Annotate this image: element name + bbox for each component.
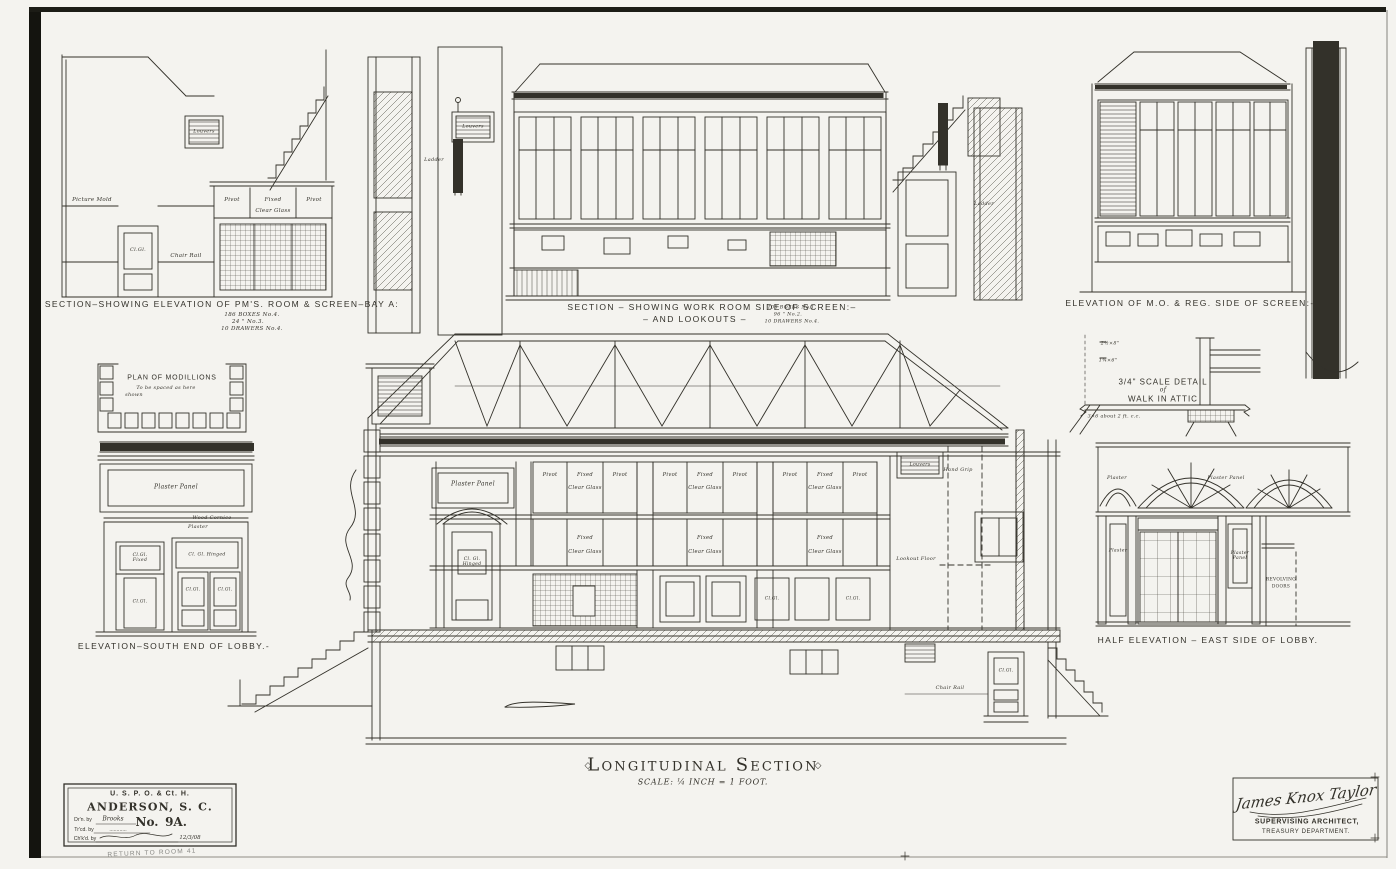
plaster-panel-label: Plaster Panel (451, 481, 495, 488)
clear-glass-label: Clear Glass (808, 485, 841, 491)
sheet-number-label: No. (136, 815, 159, 829)
plaster-label: Plaster (188, 524, 208, 530)
chair-rail-label: Chair Rail (170, 253, 201, 259)
clgl-label: Cl.Gl. (133, 600, 148, 605)
drawn-by-value: Brooks (102, 816, 123, 823)
main-section-drawing (346, 334, 1108, 744)
south-lobby-drawing (96, 442, 256, 636)
title-block-agency: U. S. P. O. & Ct. H. (110, 791, 190, 798)
workroom-note: 96 " No.2. (774, 313, 802, 318)
clear-glass-label: Clear Glass (688, 549, 721, 555)
moreg-title: ELEVATION OF M.O. & REG. SIDE OF SCREEN:… (1065, 298, 1314, 308)
sheet-number-value: 9A. (165, 815, 187, 829)
plaster-panel-label: Plaster Panel (1227, 551, 1253, 561)
fixed-label: Fixed (817, 472, 833, 478)
chair-rail-label: Chair Rail (936, 685, 965, 691)
modillions-note-1: To be spaced as here (136, 385, 195, 391)
clear-glass-label: Clear Glass (688, 485, 721, 491)
clear-glass-label: Clear Glass (568, 485, 601, 491)
modillions-title: PLAN OF MODILLIONS (127, 375, 216, 382)
architect-role: SUPERVISING ARCHITECT, (1255, 819, 1359, 826)
sheet-scale: SCALE: ¼ INCH = 1 FOOT. (638, 778, 769, 787)
clgl-label: Cl.Gl. (999, 669, 1014, 674)
attic-title-2: of (1160, 387, 1166, 394)
fixed-label: Fixed (697, 535, 713, 541)
revolving-doors-label: REVOLVING (1266, 578, 1296, 583)
clgl-label: Cl.Gl. (130, 247, 146, 253)
clgl-label: Cl.Gl. (186, 588, 201, 593)
clgl-label: Cl.Gl. (846, 597, 861, 602)
picture-mold-label: Picture Mold (72, 197, 112, 203)
pivot-label: Pivot (306, 197, 322, 203)
attic-title-3: WALK IN ATTIC (1128, 395, 1198, 404)
attic-dim-2: 1¾×6" (1099, 359, 1117, 364)
attic-dim-1: 2½×8" (1101, 342, 1119, 347)
revolving-doors-label: DOORS (1272, 585, 1290, 590)
pms-note: 10 DRAWERS No.4. (221, 326, 283, 332)
architect-dept: TREASURY DEPARTMENT. (1262, 829, 1350, 835)
wood-cornice-label: Wood Cornice (192, 515, 231, 521)
right-ladder-drawing (1306, 48, 1358, 378)
pivot-label: Pivot (853, 472, 868, 478)
clgl-hinged-label: Cl. Gl. Hinged (188, 553, 225, 558)
moreg-drawing (1080, 52, 1305, 292)
pivot-label: Pivot (733, 472, 748, 478)
plaster-panel-label: Plaster Panel (1207, 475, 1244, 481)
pivot-label: Pivot (783, 472, 798, 478)
clear-glass-label: Clear Glass (568, 549, 601, 555)
pms-note: 186 BOXES No.4. (224, 312, 279, 318)
scan-border (29, 7, 1387, 858)
traced-by-value: ............ (109, 827, 126, 833)
title-block-city: ANDERSON, S. C. (87, 801, 213, 814)
tower-drawing (438, 47, 502, 335)
clear-glass-label: Clear Glass (808, 549, 841, 555)
drawn-by-label: Dr'n. by (74, 817, 92, 823)
fixed-label: Fixed (577, 472, 593, 478)
checked-date-value: 12/3/08 (179, 835, 200, 841)
workroom-subtitle: – AND LOOKOUTS – (643, 314, 747, 324)
plaster-label: Plaster (1109, 549, 1128, 554)
checked-by-label: Ch'k'd. by (74, 836, 96, 842)
fixed-label: Fixed (265, 197, 282, 203)
clgl-label: Cl.Gl. (765, 597, 780, 602)
hand-grip-label: Hand Grip (943, 467, 972, 473)
clgl-hinged-label: Cl. Gl. Hinged (457, 557, 487, 567)
ladder-label: Ladder (974, 201, 994, 207)
pms-title: SECTION–SHOWING ELEVATION OF PM'S. ROOM … (45, 299, 399, 309)
attic-note: 3×6 about 2 ft. c.c. (1088, 415, 1141, 420)
modillions-note-2: shown (125, 392, 143, 398)
pms-room-drawing (62, 50, 334, 297)
signature-block-rules (901, 773, 1379, 860)
louvers-label: Louvers (910, 463, 931, 468)
pivot-label: Pivot (543, 472, 558, 478)
east-lobby-drawing (1096, 443, 1350, 626)
south-lobby-title: ELEVATION–SOUTH END OF LOBBY.- (78, 641, 270, 651)
louvers-label: Louvers (193, 130, 215, 135)
pivot-label: Pivot (224, 197, 240, 203)
wall-strip-drawing (368, 57, 420, 333)
fixed-label: Fixed (697, 472, 713, 478)
ladder-label: Ladder (424, 157, 444, 163)
plaster-label: Plaster (1107, 475, 1127, 481)
pms-note: 24 " No.3. (232, 319, 264, 325)
clgl-label: Cl.Gl. (218, 588, 233, 593)
attic-title-1: 3/4" SCALE DETAIL (1118, 378, 1207, 387)
traced-by-label: Tr'cd. by (74, 827, 94, 833)
lookout-floor-label: Lookout Floor (896, 556, 936, 562)
fixed-label: Fixed (577, 535, 593, 541)
clear-glass-label: Clear Glass (255, 208, 290, 214)
pivot-label: Pivot (613, 472, 628, 478)
workroom-note: 108 BOXES No.1. (768, 306, 817, 311)
title-ornament-right: ◇ (815, 761, 822, 771)
east-lobby-title: HALF ELEVATION – EAST SIDE OF LOBBY. (1098, 635, 1319, 645)
drawing-sheet: SECTION–SHOWING ELEVATION OF PM'S. ROOM … (0, 0, 1396, 869)
pivot-label: Pivot (663, 472, 678, 478)
louvers-label: Louvers (462, 125, 484, 130)
workroom-drawing (506, 64, 890, 300)
sheet-title: Longitudinal Section (587, 755, 818, 776)
stair-door-drawing (893, 96, 1022, 300)
plaster-panel-label: Plaster Panel (154, 484, 198, 491)
fixed-label: Fixed (817, 535, 833, 541)
workroom-note: 10 DRAWERS No.4. (765, 320, 820, 325)
clgl-fixed-label: Cl.Gl. Fixed (127, 553, 153, 563)
